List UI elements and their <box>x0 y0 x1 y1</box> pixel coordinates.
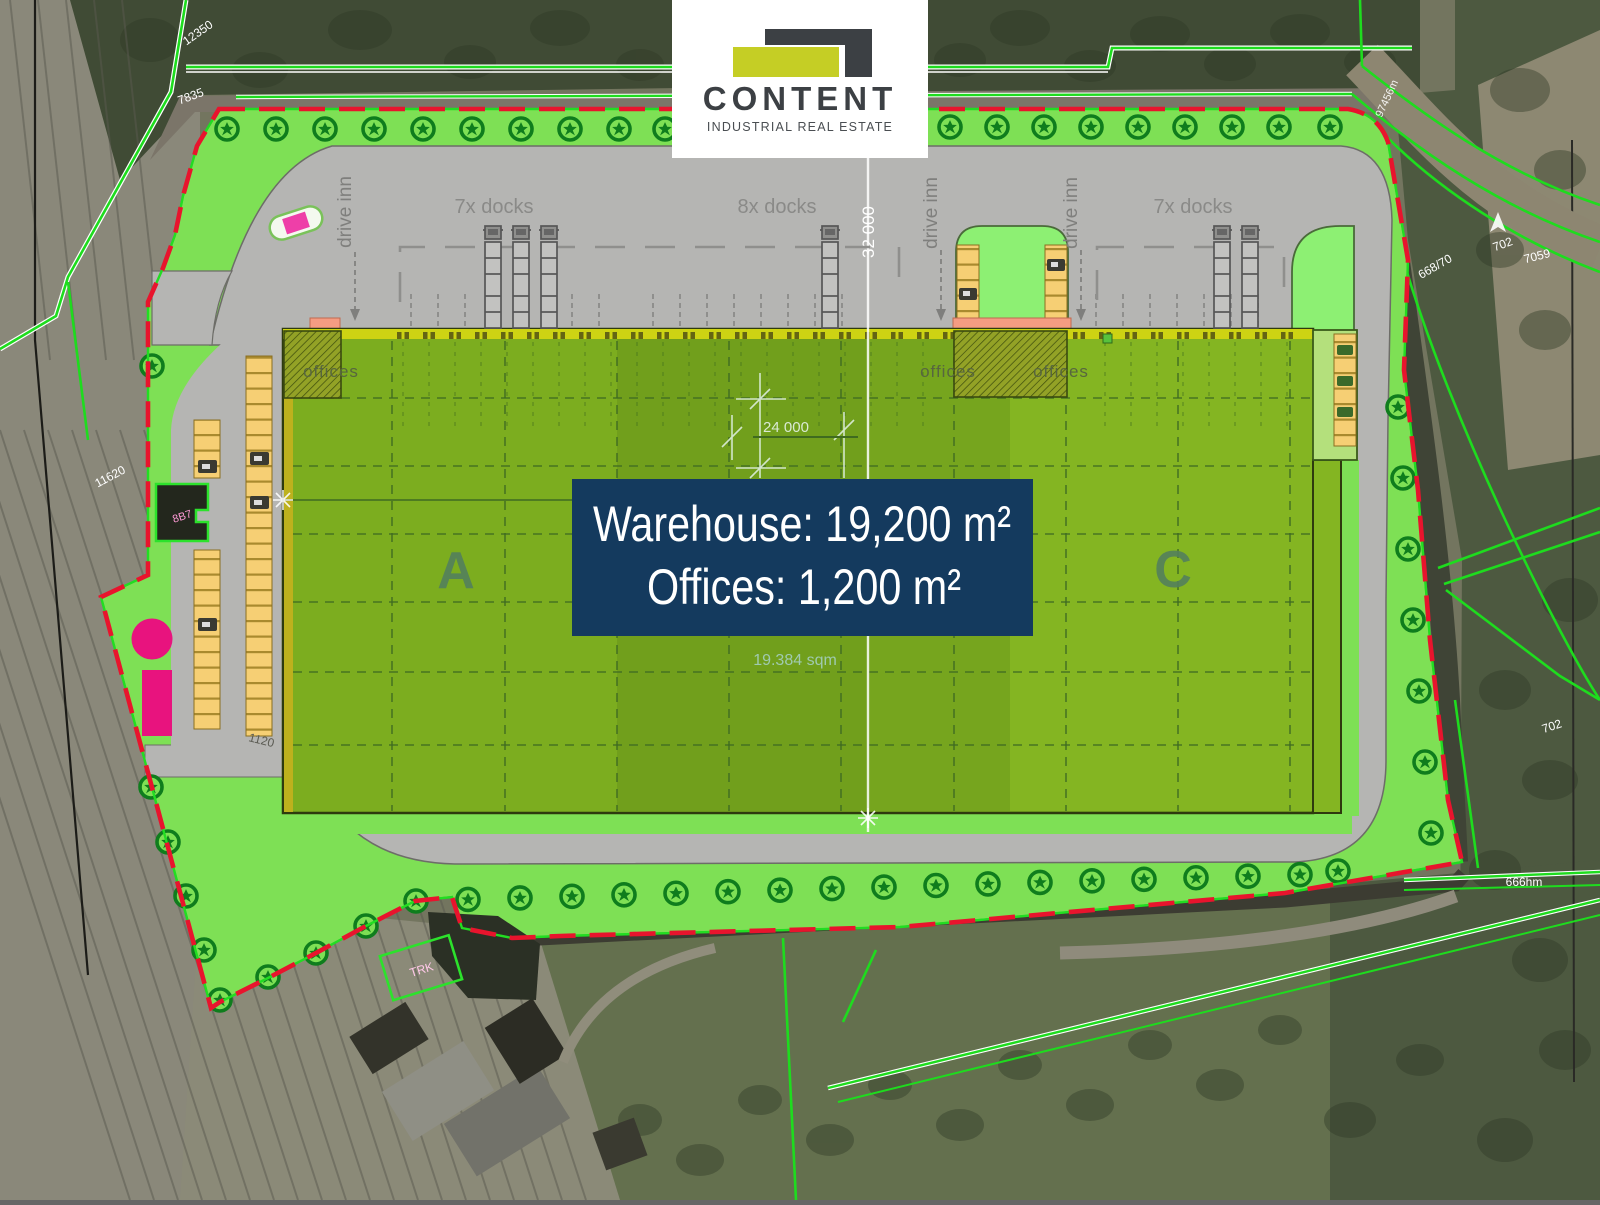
svg-text:19.384 sqm: 19.384 sqm <box>753 652 837 669</box>
svg-text:drive inn: drive inn <box>335 176 356 248</box>
svg-text:drive inn: drive inn <box>1061 177 1082 249</box>
svg-text:A: A <box>437 542 475 600</box>
svg-text:8x docks: 8x docks <box>738 196 817 218</box>
svg-text:CONTENT: CONTENT <box>703 80 898 117</box>
svg-text:drive inn: drive inn <box>921 177 942 249</box>
svg-text:Warehouse: 19,200 m²: Warehouse: 19,200 m² <box>593 496 1011 552</box>
svg-text:7x docks: 7x docks <box>1154 196 1233 218</box>
svg-text:offices: offices <box>303 362 359 381</box>
svg-text:C: C <box>1154 541 1192 599</box>
svg-text:offices: offices <box>1033 362 1089 381</box>
svg-text:666hm: 666hm <box>1506 875 1543 889</box>
svg-text:INDUSTRIAL REAL ESTATE: INDUSTRIAL REAL ESTATE <box>707 120 893 134</box>
svg-text:7x docks: 7x docks <box>455 196 534 218</box>
svg-text:32 000: 32 000 <box>859 206 878 258</box>
svg-text:24 000: 24 000 <box>763 419 809 436</box>
svg-text:Offices: 1,200 m²: Offices: 1,200 m² <box>647 559 961 615</box>
svg-text:offices: offices <box>920 362 976 381</box>
